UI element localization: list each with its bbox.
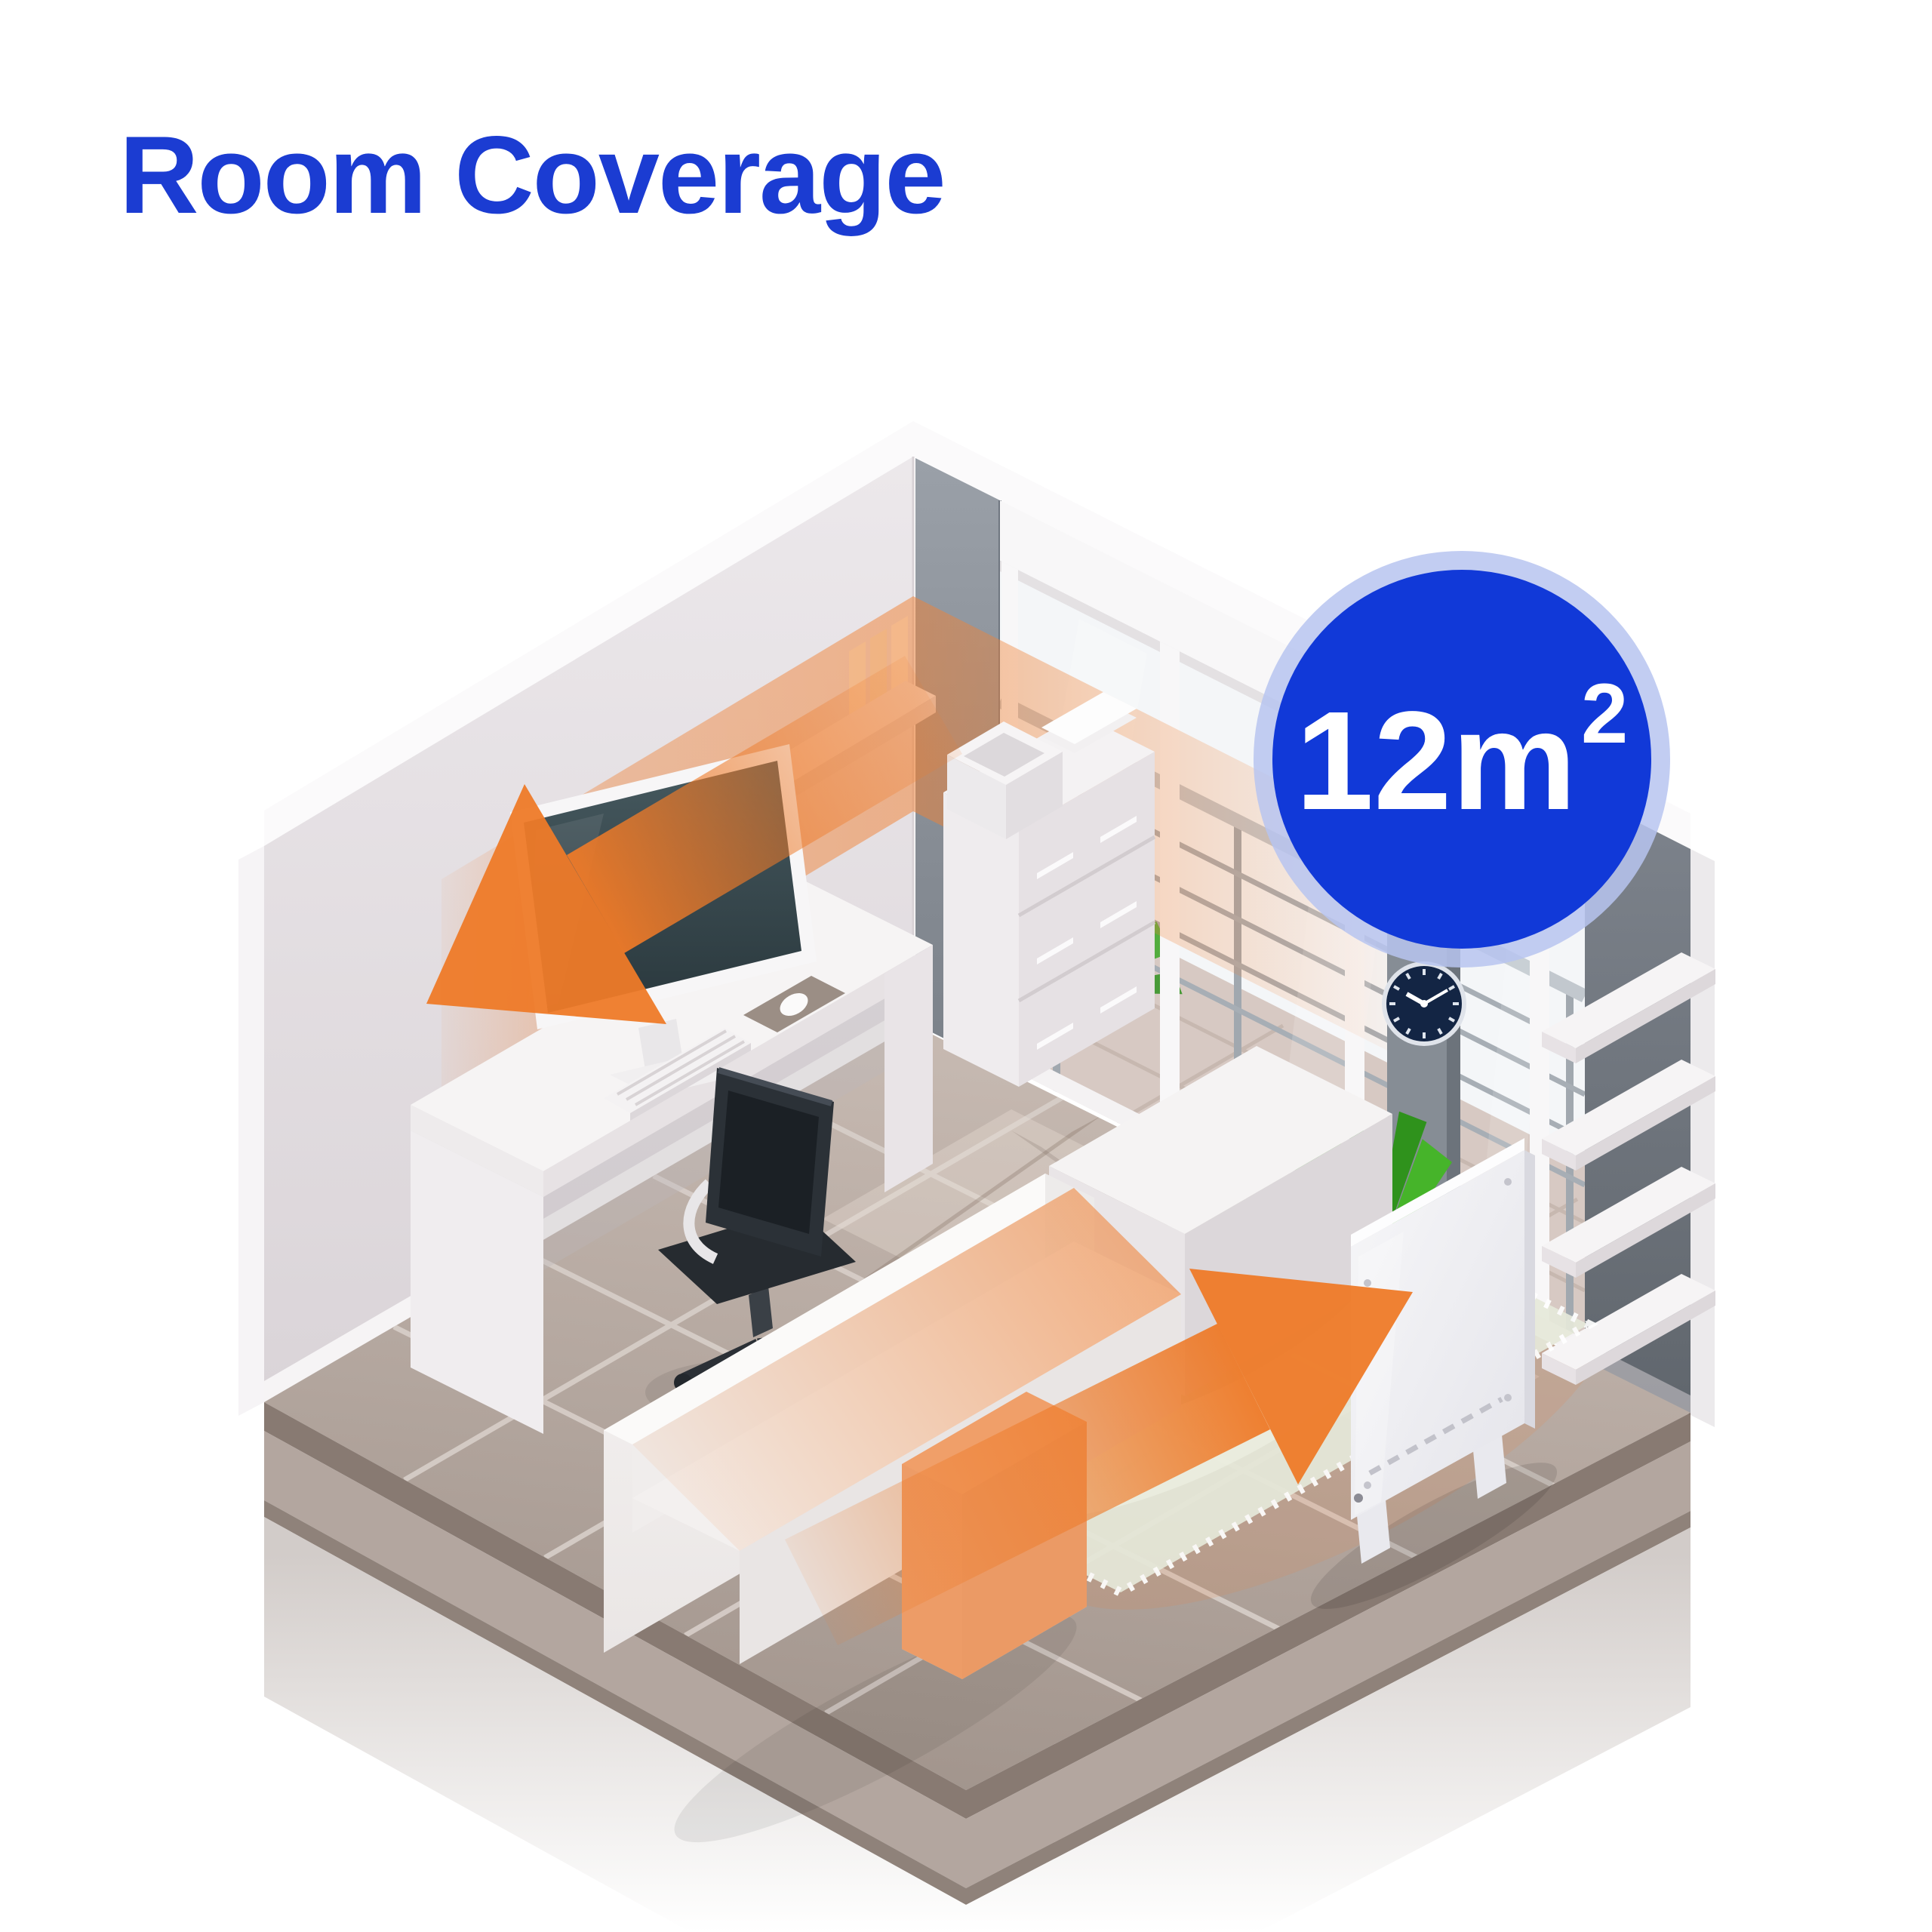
room-illustration: 12m2 [0, 0, 1932, 1932]
wall-clock-icon [1382, 961, 1466, 1046]
coverage-badge: 12m2 [1254, 551, 1670, 968]
heater-control [1354, 1494, 1363, 1503]
badge-superscript: 2 [1581, 666, 1628, 761]
page: Room Coverage [0, 0, 1932, 1932]
badge-value: 12m [1296, 683, 1577, 839]
